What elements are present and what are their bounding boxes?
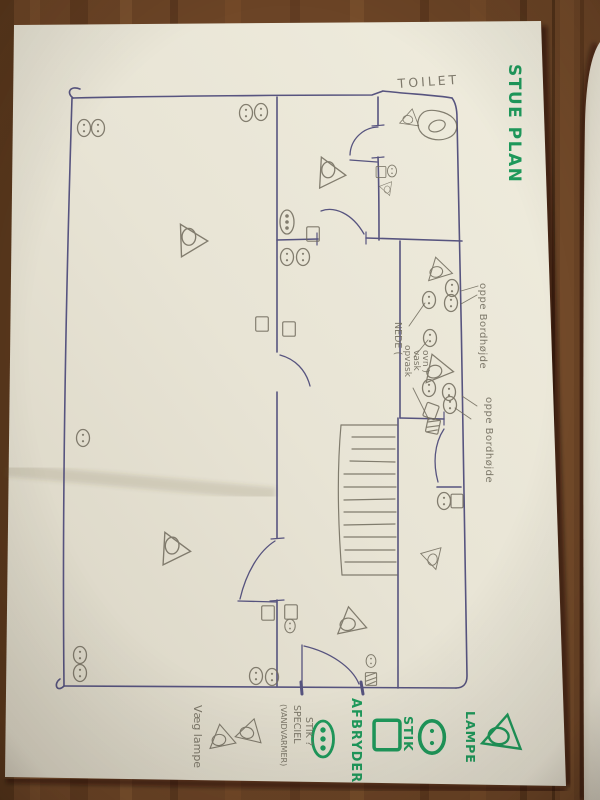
photo-vignette [0,0,600,800]
floor-plan-photo: STUE PLAN LAMPE STIK AFBRYDER TOILET opp… [0,0,600,800]
floor-plan-drawing: STUE PLAN LAMPE STIK AFBRYDER TOILET opp… [0,0,600,800]
